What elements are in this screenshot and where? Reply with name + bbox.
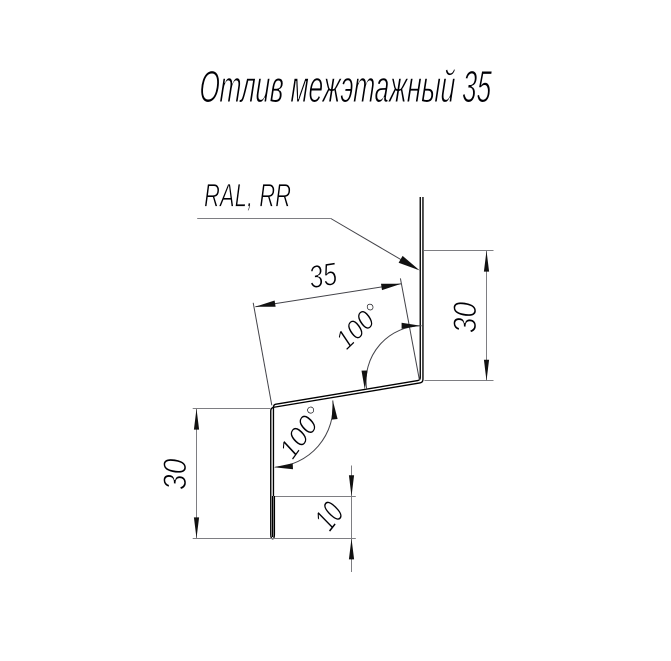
svg-text:Отлив межэтажный 35: Отлив межэтажный 35 xyxy=(199,62,493,112)
svg-text:30: 30 xyxy=(158,458,193,490)
svg-text:100°: 100° xyxy=(331,299,388,356)
svg-text:100°: 100° xyxy=(273,401,330,464)
svg-text:30: 30 xyxy=(448,302,483,334)
svg-text:35: 35 xyxy=(307,256,341,296)
svg-text:10: 10 xyxy=(307,495,351,537)
svg-text:RAL, RR: RAL, RR xyxy=(204,177,291,213)
